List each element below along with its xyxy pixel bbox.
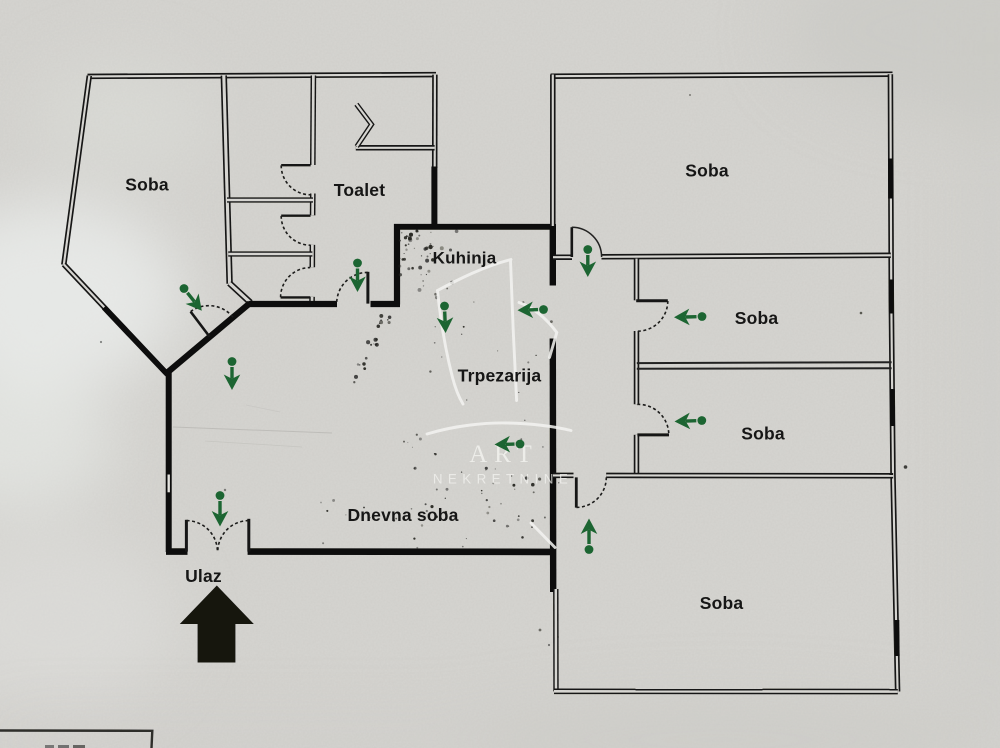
svg-text:Soba: Soba	[700, 593, 744, 613]
svg-text:Soba: Soba	[735, 308, 779, 328]
svg-text:Ulaz: Ulaz	[185, 566, 222, 586]
svg-text:Soba: Soba	[685, 161, 729, 181]
svg-text:NEKRETNINE: NEKRETNINE	[433, 472, 573, 487]
svg-text:Soba: Soba	[741, 424, 785, 444]
svg-text:Soba: Soba	[125, 175, 169, 195]
svg-text:Kuhinja: Kuhinja	[433, 249, 497, 268]
svg-text:Toalet: Toalet	[334, 180, 385, 200]
svg-text:Trpezarija: Trpezarija	[458, 366, 542, 386]
svg-text:Dnevna soba: Dnevna soba	[347, 505, 458, 525]
